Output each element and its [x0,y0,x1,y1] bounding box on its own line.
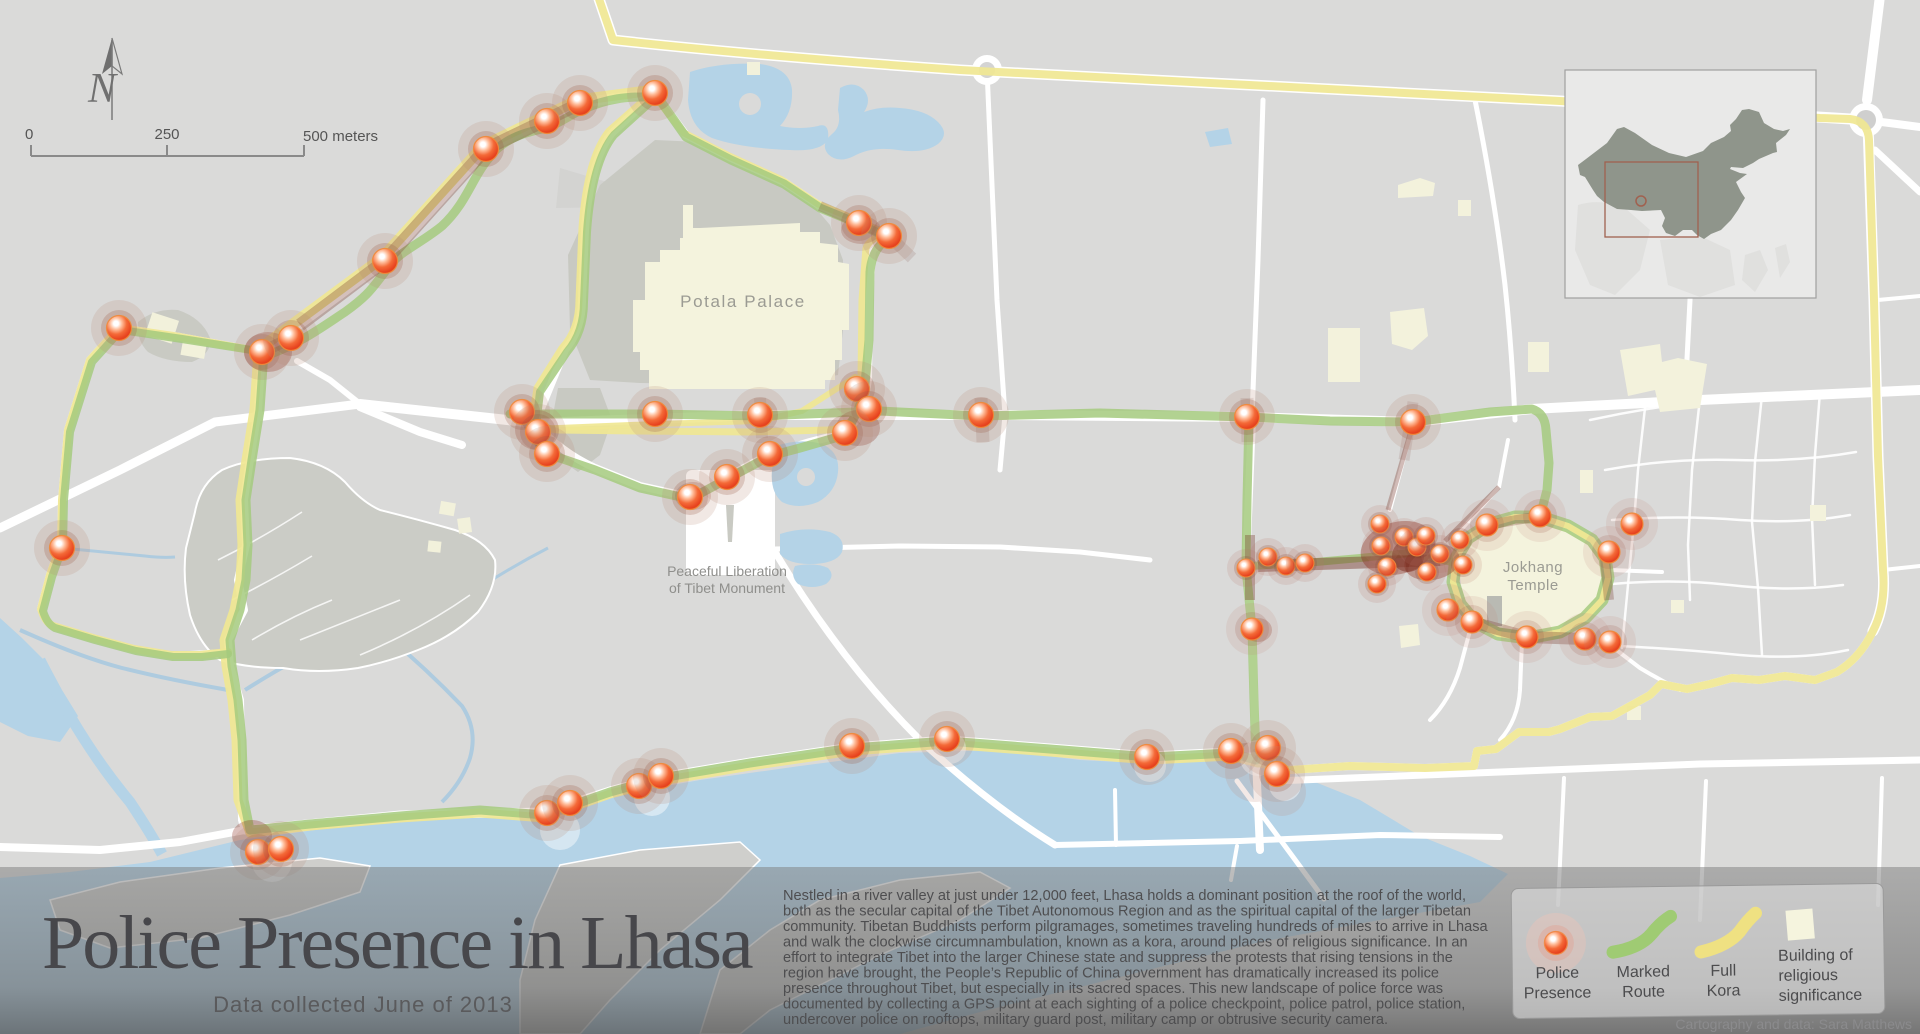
svg-text:Route: Route [1622,983,1665,1001]
svg-text:of Tibet Monument: of Tibet Monument [669,580,785,596]
svg-text:Police: Police [1535,965,1579,983]
svg-text:Nestled in a river valley at j: Nestled in a river valley at just under … [783,888,1492,1028]
svg-text:0: 0 [25,126,33,143]
svg-text:religious: religious [1778,967,1838,985]
svg-text:N: N [87,66,118,112]
svg-text:Data collected June of 2013: Data collected June of 2013 [213,992,513,1017]
svg-text:Peaceful Liberation: Peaceful Liberation [667,563,787,579]
svg-text:Building of: Building of [1778,947,1854,965]
svg-text:Police Presence in Lhasa: Police Presence in Lhasa [42,901,753,985]
svg-text:Marked: Marked [1617,963,1671,981]
svg-text:Temple: Temple [1507,577,1558,594]
svg-text:Cartography and data: Sara Mat: Cartography and data: Sara Matthews [1675,1016,1912,1032]
svg-text:Kora: Kora [1707,982,1741,999]
svg-text:Full: Full [1710,962,1736,979]
svg-text:Presence: Presence [1524,984,1592,1002]
svg-text:significance: significance [1779,987,1863,1005]
svg-text:500 meters: 500 meters [303,128,378,145]
svg-text:Potala Palace: Potala Palace [680,292,806,311]
svg-text:250: 250 [154,126,179,143]
svg-text:Jokhang: Jokhang [1503,559,1563,576]
